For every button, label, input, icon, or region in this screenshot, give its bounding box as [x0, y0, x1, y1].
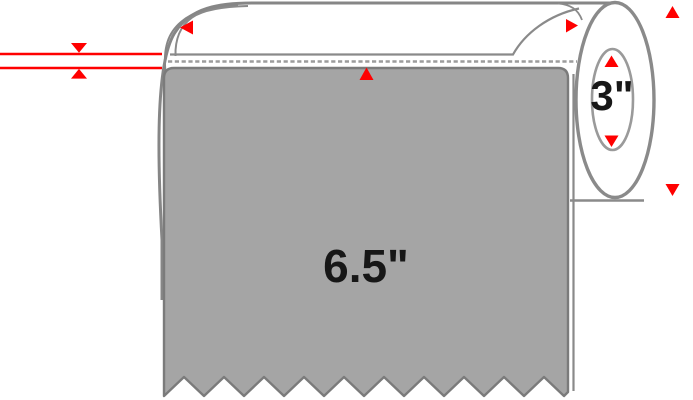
core-diameter-text: 3": [590, 72, 633, 119]
label-roll-diagram: 6.5" 3": [0, 0, 693, 400]
thickness-arrow-down-icon: [71, 43, 87, 53]
thickness-arrow-up-icon: [71, 69, 87, 79]
outer-diameter-arrow-up-icon: [666, 6, 680, 18]
label-sheet: 6.5": [164, 68, 568, 396]
roll-end-view: 3": [576, 3, 654, 198]
thickness-measure: [0, 54, 162, 68]
roll-inner-wrap: [175, 6, 248, 56]
roll-unwind-spiral-line: [170, 9, 579, 55]
unwind-arrow-right-icon: [566, 19, 578, 33]
label-sheet-shape: [164, 68, 568, 396]
label-width-text: 6.5": [323, 240, 409, 292]
diagram-canvas: 6.5" 3": [0, 0, 693, 400]
outer-diameter-arrow-down-icon: [666, 184, 680, 196]
